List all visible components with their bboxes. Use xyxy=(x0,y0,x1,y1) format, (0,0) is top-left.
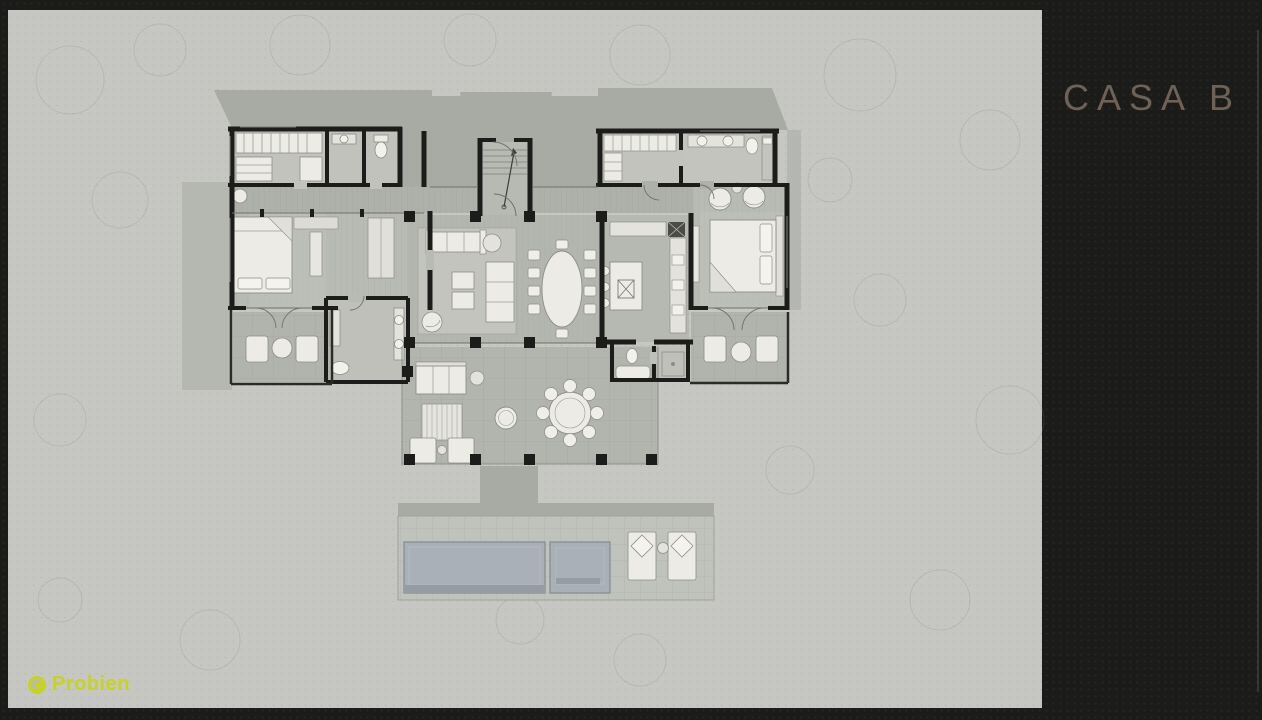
spa xyxy=(550,542,610,593)
pool xyxy=(404,542,545,593)
patio-west xyxy=(246,336,318,362)
brand-logo-text: Probien xyxy=(52,673,130,696)
living-room xyxy=(418,228,516,334)
right-edge-line xyxy=(1257,30,1259,692)
slide-frame: CASA B Probien xyxy=(0,0,1262,720)
brand-logo-icon xyxy=(27,675,47,695)
pool-area xyxy=(398,516,714,600)
brand-logo: Probien xyxy=(27,673,130,696)
page-title: CASA B xyxy=(1042,80,1262,116)
